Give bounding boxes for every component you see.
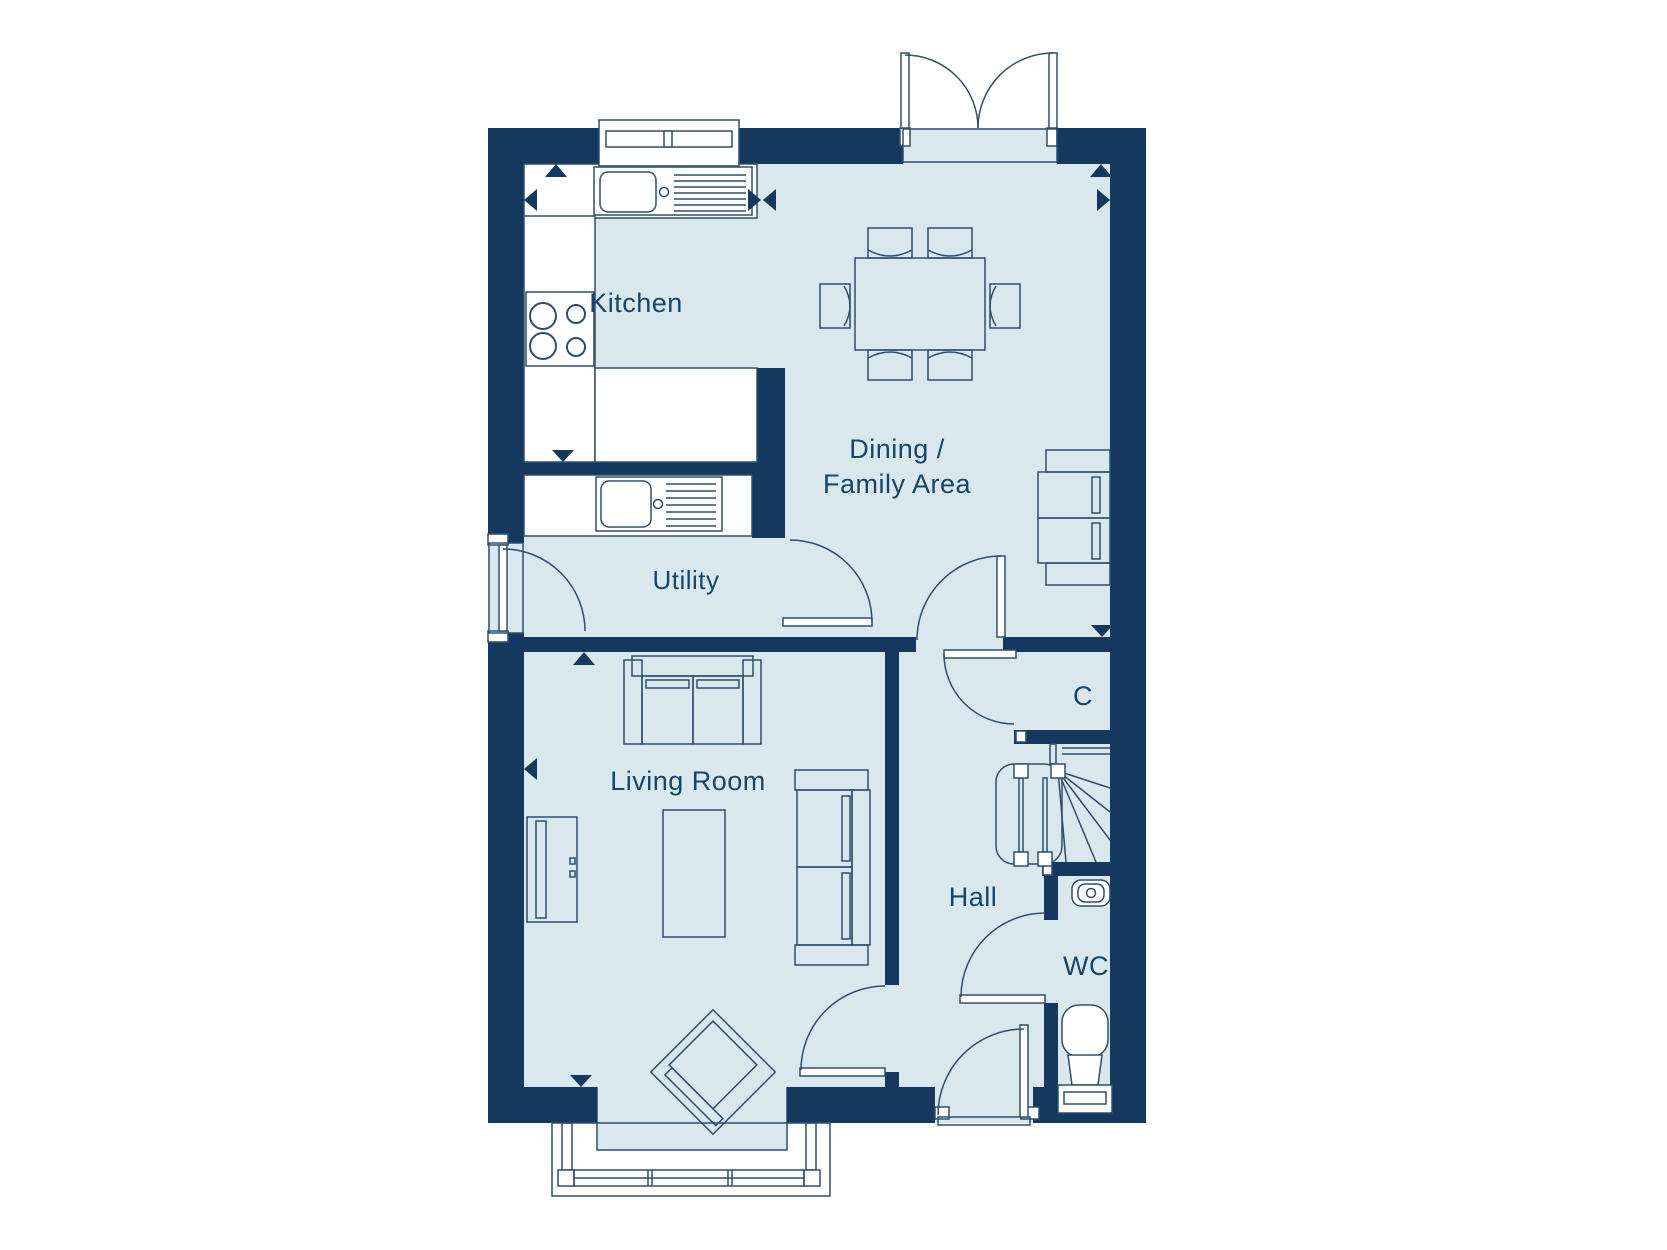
newel-post	[1051, 764, 1065, 778]
cupboard-jamb	[1016, 731, 1026, 742]
wall-left-upper	[488, 128, 524, 543]
french-door-threshold	[903, 128, 1057, 164]
wall-wc-west-upper	[1044, 876, 1058, 920]
newel-post	[1014, 764, 1028, 778]
wall-wc-west-lower	[1044, 1003, 1058, 1087]
label-wc: WC	[1063, 951, 1109, 981]
kitchen-window	[599, 120, 739, 166]
french-door-left-leaf	[901, 53, 909, 128]
french-jamb-left	[900, 128, 910, 146]
french-door-right-leaf	[1049, 53, 1057, 128]
french-door-left-swing	[905, 55, 978, 128]
wall-dining-cupboard	[1003, 637, 1110, 652]
french-jamb-right	[1047, 128, 1057, 146]
wall-living-hall-lower	[885, 1072, 899, 1087]
newel-post	[1014, 852, 1028, 866]
wall-cupboard-stairs	[1014, 730, 1110, 744]
floorplan-drawing: Kitchen Dining / Family Area Utility Liv…	[0, 0, 1667, 1250]
label-dining-line2: Family Area	[823, 469, 972, 499]
newel-post	[1038, 852, 1052, 866]
kitchen-lower-area	[595, 368, 757, 462]
bay-floor	[597, 1087, 787, 1150]
label-dining-line1: Dining /	[849, 434, 945, 464]
wall-bottom-mid	[787, 1087, 935, 1123]
wall-kitchen-utility	[524, 462, 752, 475]
wall-living-hall-upper	[885, 652, 899, 985]
floorplan-canvas: Kitchen Dining / Family Area Utility Liv…	[0, 0, 1667, 1250]
label-utility: Utility	[652, 565, 719, 595]
wall-right	[1110, 128, 1146, 1123]
wall-left-lower	[488, 633, 524, 1123]
wall-utility-living	[524, 637, 916, 652]
french-door-right-swing	[978, 53, 1053, 128]
label-kitchen: Kitchen	[589, 288, 683, 318]
kitchen-counter-left	[524, 216, 595, 462]
wall-bottom-left	[488, 1087, 597, 1123]
label-living-room: Living Room	[610, 766, 766, 796]
wall-top-mid	[737, 128, 903, 164]
label-hall: Hall	[949, 882, 998, 912]
label-cupboard: C	[1073, 681, 1093, 711]
wc-basin-icon	[1072, 880, 1110, 906]
